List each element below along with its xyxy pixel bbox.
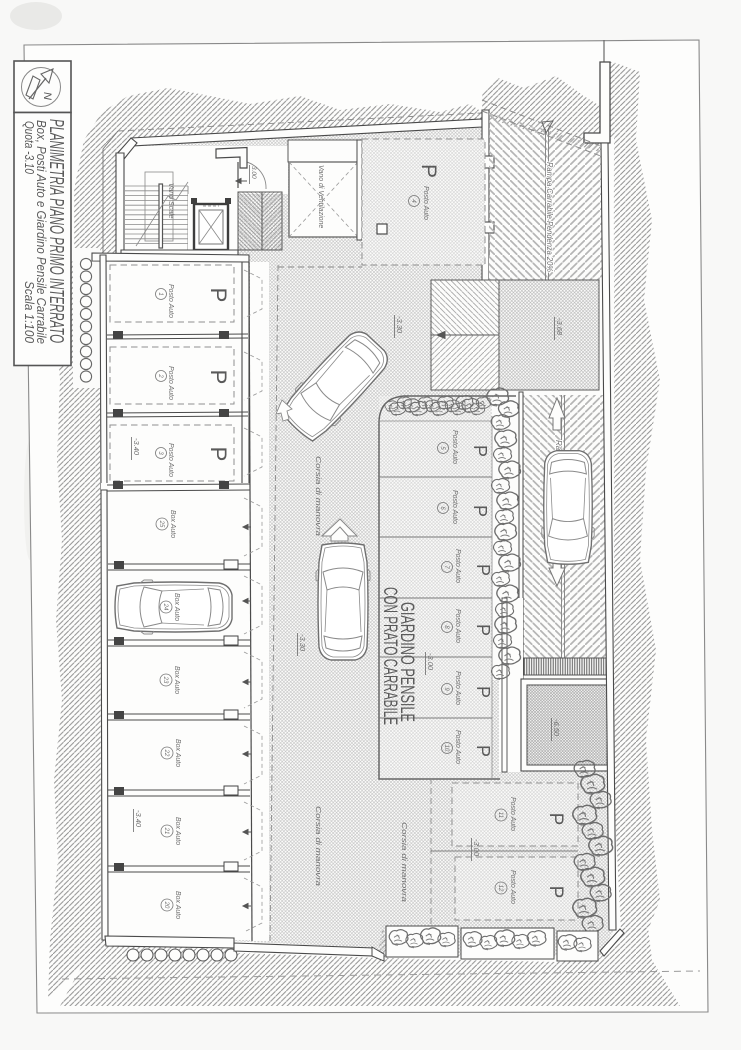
- svg-text:Corsia di manovra: Corsia di manovra: [400, 822, 409, 902]
- svg-text:P: P: [473, 745, 493, 757]
- svg-text:22: 22: [163, 749, 169, 757]
- svg-text:-3.00: -3.00: [426, 653, 435, 671]
- svg-text:Rampa Carrabile Pendenza 20%: Rampa Carrabile Pendenza 20%: [545, 162, 554, 272]
- svg-text:Vano Scale: Vano Scale: [167, 183, 174, 219]
- svg-text:11: 11: [497, 812, 503, 818]
- svg-text:Posto Auto: Posto Auto: [422, 186, 429, 220]
- svg-text:P: P: [545, 813, 566, 826]
- svg-text:Box Auto: Box Auto: [173, 593, 180, 621]
- svg-text:Posto Auto: Posto Auto: [509, 797, 516, 831]
- svg-text:Posto Auto: Posto Auto: [167, 284, 174, 318]
- svg-text:-3.40: -3.40: [134, 810, 143, 828]
- svg-text:Scala 1:100: Scala 1:100: [22, 281, 37, 344]
- svg-text:P: P: [206, 447, 231, 462]
- svg-text:-6.50: -6.50: [552, 719, 561, 737]
- svg-text:2: 2: [157, 373, 163, 378]
- svg-text:12: 12: [497, 885, 503, 892]
- svg-text:Corsia di manovra: Corsia di manovra: [314, 456, 323, 536]
- svg-text:P: P: [417, 164, 440, 178]
- svg-text:25: 25: [158, 520, 164, 528]
- svg-text:Box Auto: Box Auto: [174, 891, 181, 919]
- svg-text:-3.30: -3.30: [395, 316, 404, 334]
- svg-text:21: 21: [163, 827, 169, 835]
- svg-text:P: P: [545, 886, 566, 899]
- svg-text:Posto Auto: Posto Auto: [509, 870, 516, 904]
- svg-text:Posto Auto: Posto Auto: [451, 430, 458, 464]
- svg-text:Posto Auto: Posto Auto: [454, 549, 461, 583]
- svg-text:20: 20: [163, 901, 169, 909]
- svg-text:P: P: [473, 686, 493, 698]
- svg-text:Posto Auto: Posto Auto: [451, 490, 458, 524]
- svg-text:-3.00: -3.00: [472, 839, 481, 857]
- svg-text:Vano di Ventilazione: Vano di Ventilazione: [317, 165, 324, 228]
- svg-text:P: P: [206, 370, 231, 385]
- svg-text:Corsia di manovra: Corsia di manovra: [314, 806, 323, 886]
- svg-text:Posto Auto: Posto Auto: [167, 443, 174, 477]
- svg-text:Posto Auto: Posto Auto: [454, 730, 461, 764]
- svg-text:Box Auto: Box Auto: [169, 510, 176, 538]
- svg-text:P: P: [206, 288, 231, 303]
- svg-text:P: P: [473, 564, 493, 576]
- svg-text:10: 10: [443, 745, 449, 752]
- svg-text:Quota -3.10: Quota -3.10: [22, 121, 37, 175]
- svg-text:Box Auto: Box Auto: [174, 817, 181, 845]
- svg-text:P: P: [470, 445, 490, 457]
- svg-text:P: P: [473, 624, 493, 636]
- svg-text:Box Auto: Box Auto: [174, 739, 181, 767]
- svg-text:Posto Auto: Posto Auto: [454, 609, 461, 643]
- svg-text:-3.30: -3.30: [298, 634, 307, 652]
- svg-text:-3.68: -3.68: [555, 318, 564, 336]
- svg-text:24: 24: [162, 603, 168, 611]
- svg-text:CON PRATO CARRABILE: CON PRATO CARRABILE: [379, 587, 400, 725]
- svg-text:23: 23: [162, 676, 168, 684]
- svg-text:N: N: [41, 92, 53, 100]
- svg-text:P: P: [470, 505, 490, 517]
- svg-text:Posto Auto: Posto Auto: [454, 671, 461, 705]
- svg-text:3.00: 3.00: [250, 166, 257, 179]
- svg-text:-3.40: -3.40: [132, 438, 141, 456]
- svg-text:Box Auto: Box Auto: [173, 666, 180, 694]
- svg-text:Posto Auto: Posto Auto: [167, 366, 174, 400]
- svg-text:1: 1: [157, 292, 163, 295]
